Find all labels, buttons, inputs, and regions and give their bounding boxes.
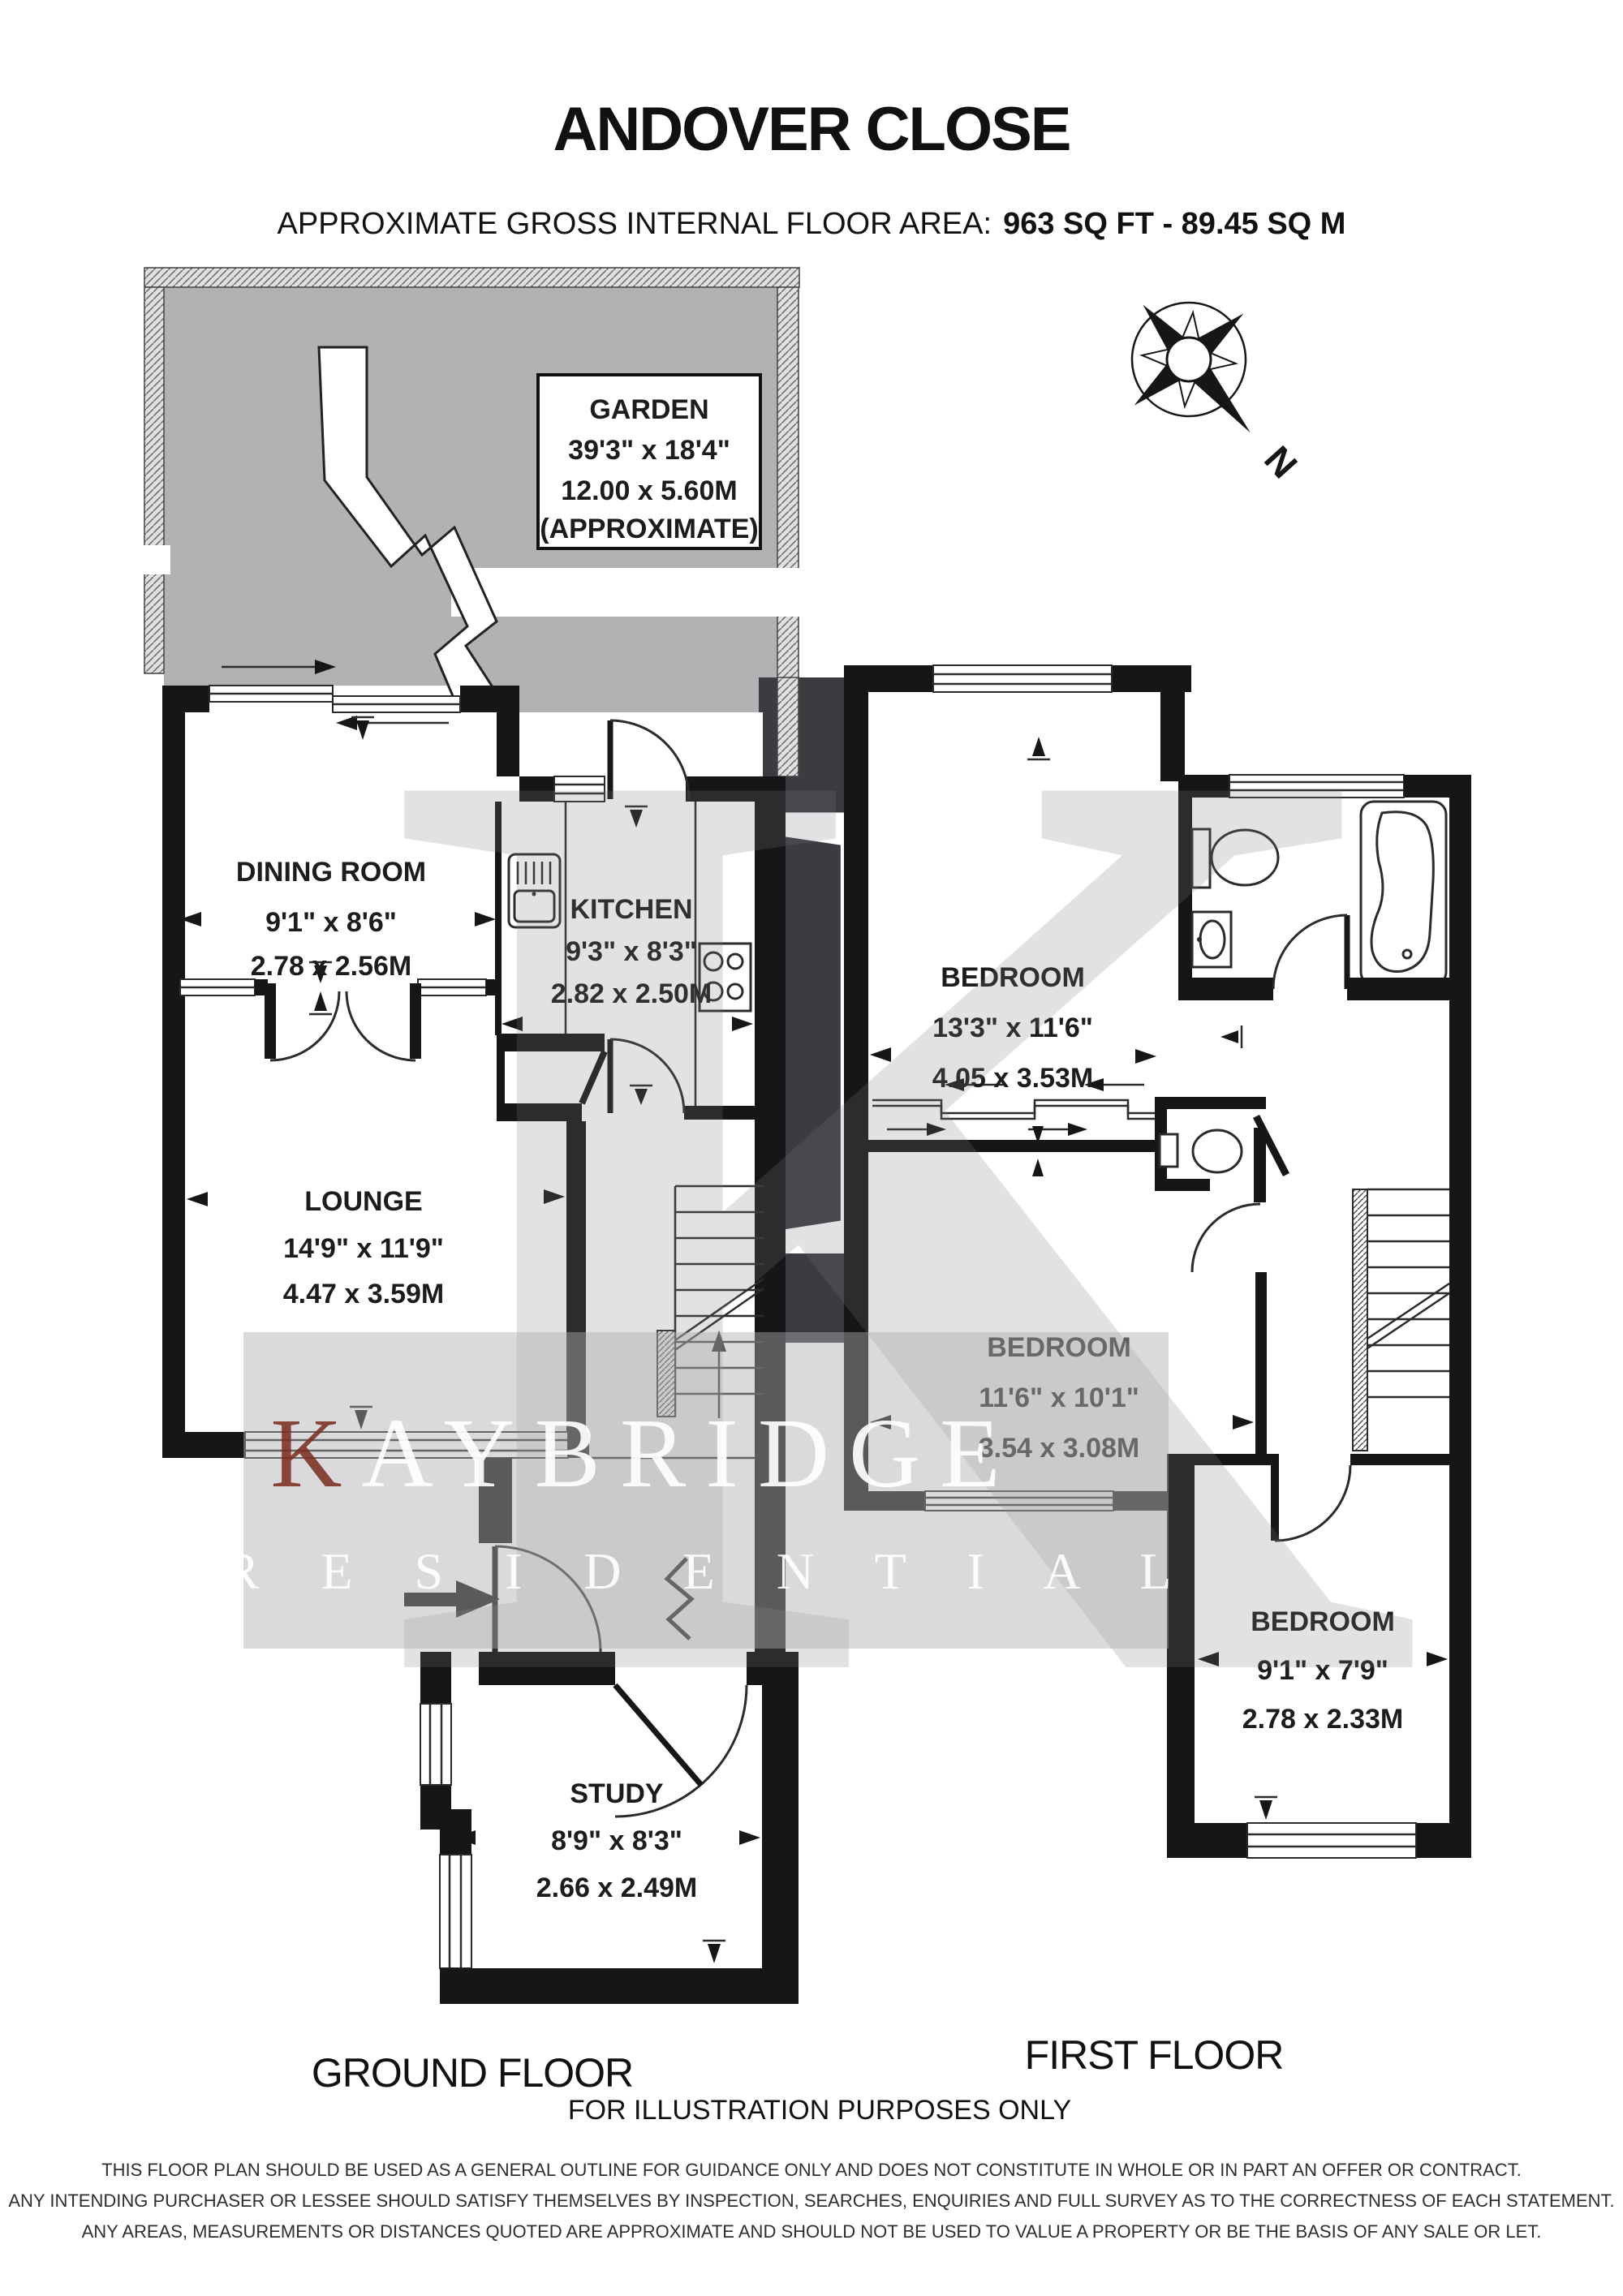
brand-rest: AYBRIDGE — [361, 1399, 1019, 1508]
wall — [162, 686, 209, 712]
footer: GROUND FLOOR FIRST FLOOR FOR ILLUSTRATIO… — [8, 2032, 1614, 2242]
disclaimer-line-2: ANY INTENDING PURCHASER OR LESSEE SHOULD… — [8, 2191, 1614, 2211]
illustration-note: FOR ILLUSTRATION PURPOSES ONLY — [568, 2095, 1071, 2126]
ground-floor-label: GROUND FLOOR — [312, 2050, 633, 2096]
watermark-brand-line2: R E S I D E N T I A L — [225, 1542, 1196, 1600]
floor-plan-page: ANDOVER CLOSE APPROXIMATE GROSS INTERNAL… — [0, 0, 1623, 2296]
area-value: 963 SQ FT - 89.45 SQ M — [1003, 207, 1345, 241]
dining-dims-ft: 9'1" x 8'6" — [265, 907, 397, 938]
area-label: APPROXIMATE GROSS INTERNAL FLOOR AREA: — [278, 207, 992, 241]
watermark-giant-letter: K — [381, 475, 1427, 1957]
wall — [162, 686, 185, 1458]
watermark-overlay: K KAYBRIDGE R E S I D E N T I A L — [225, 475, 1427, 1957]
garden-dims-ft: 39'3" x 18'4" — [568, 435, 730, 466]
header: ANDOVER CLOSE APPROXIMATE GROSS INTERNAL… — [278, 95, 1346, 241]
disclaimer-line-1: THIS FLOOR PLAN SHOULD BE USED AS A GENE… — [101, 2160, 1522, 2180]
disclaimer-line-3: ANY AREAS, MEASUREMENTS OR DISTANCES QUO… — [82, 2221, 1542, 2242]
wall — [440, 1968, 799, 2004]
page-title: ANDOVER CLOSE — [553, 95, 1070, 164]
garden-wall-top — [144, 268, 799, 287]
first-floor-label: FIRST FLOOR — [1025, 2032, 1284, 2078]
compass-icon: N — [1088, 259, 1306, 486]
garden-wall-break-left — [138, 545, 170, 574]
garden-name: GARDEN — [589, 394, 708, 425]
floor-plan-canvas: ANDOVER CLOSE APPROXIMATE GROSS INTERNAL… — [0, 0, 1623, 2296]
watermark-brand-line1: KAYBRIDGE — [270, 1399, 1019, 1508]
area-subtitle: APPROXIMATE GROSS INTERNAL FLOOR AREA:96… — [278, 207, 1346, 241]
garden-wall-left — [144, 287, 164, 673]
french-door-leaf — [265, 983, 276, 1059]
wall — [1449, 775, 1471, 1858]
brand-initial: K — [270, 1399, 361, 1508]
